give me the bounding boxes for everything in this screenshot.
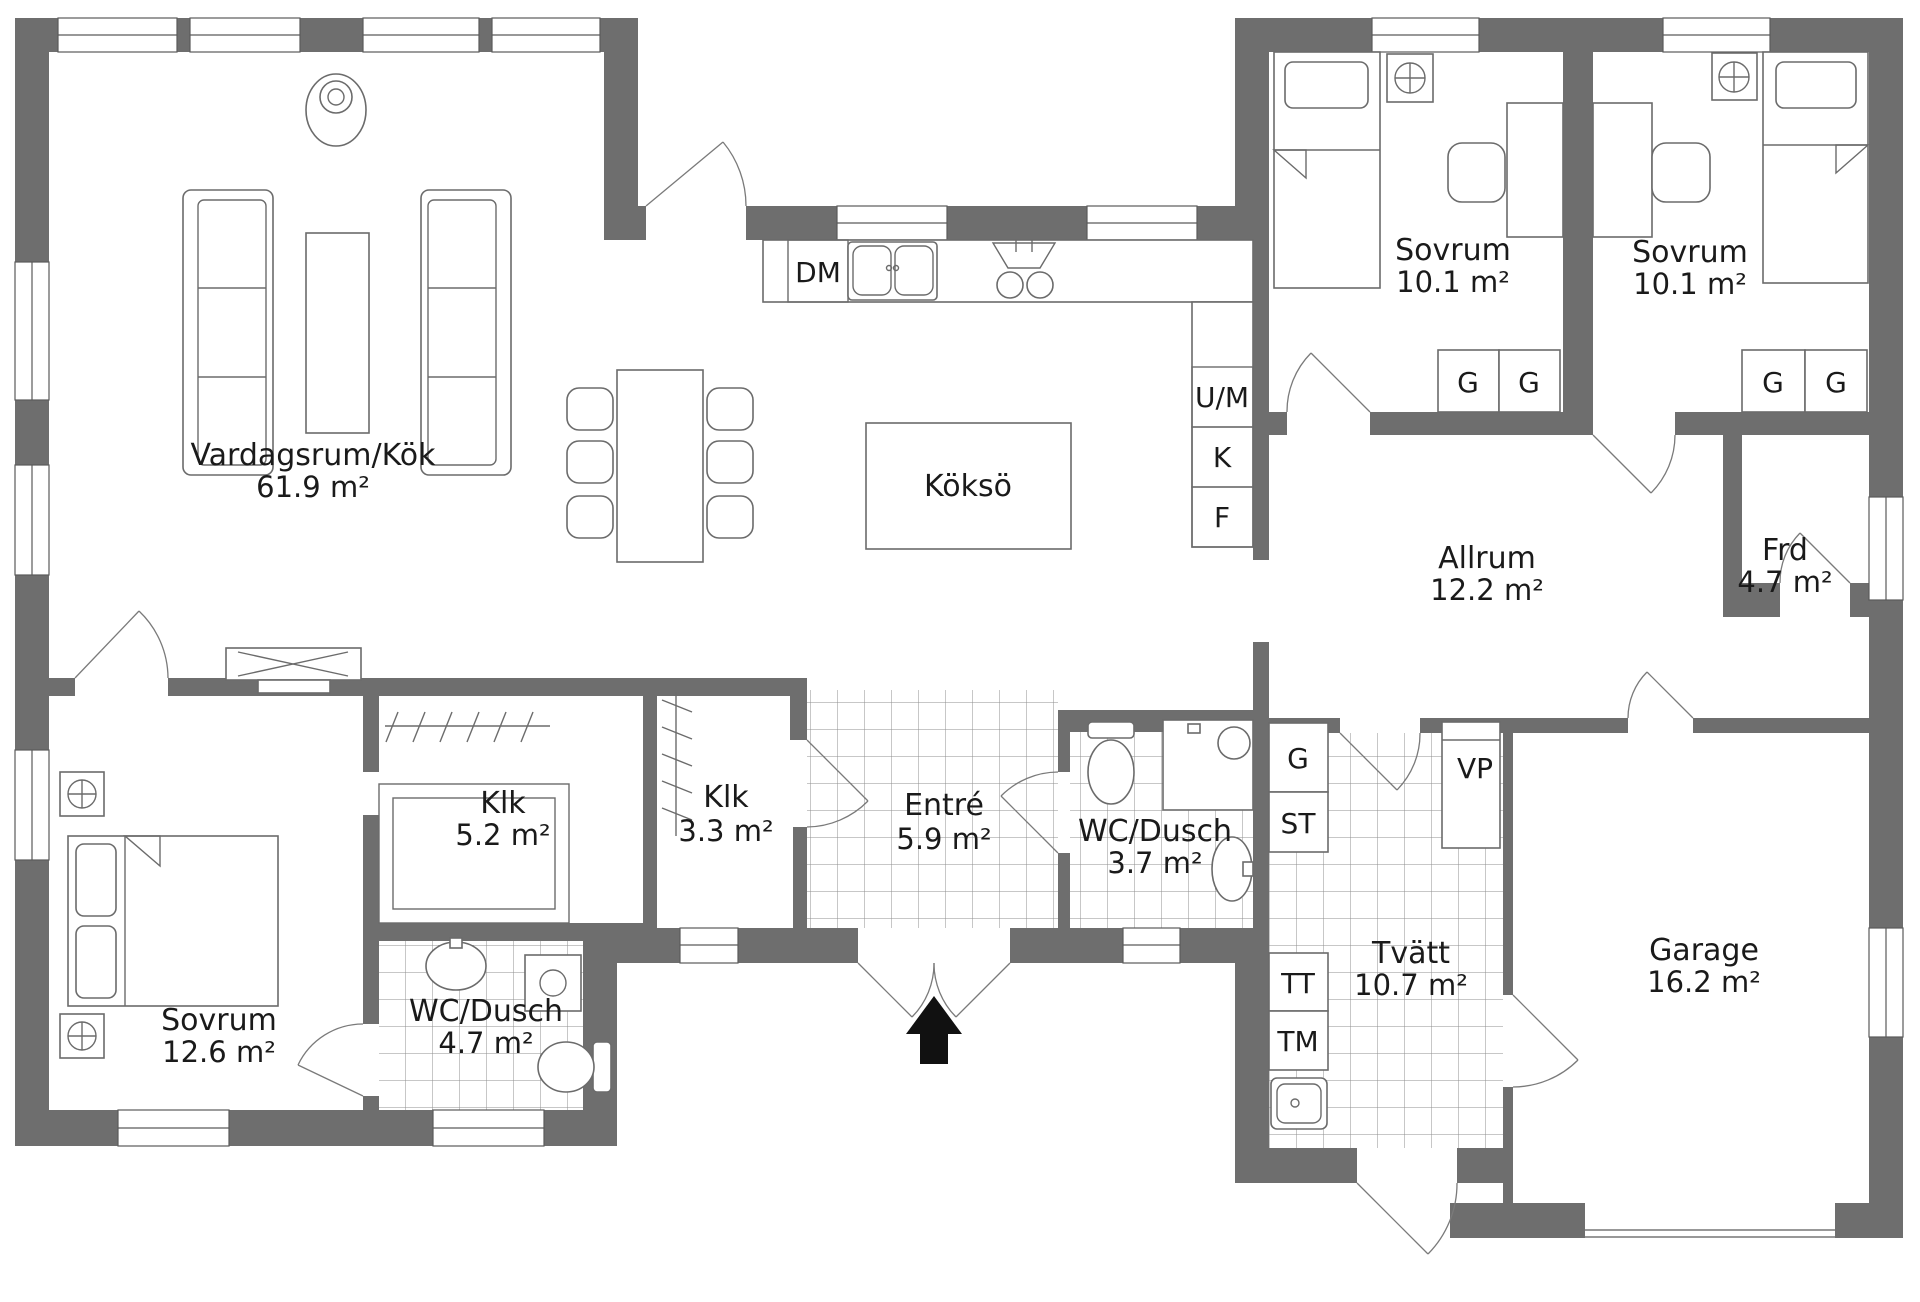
- door-garage: [1628, 672, 1693, 733]
- label-um: U/M: [1195, 381, 1249, 414]
- opening-klk-stor: [363, 772, 379, 815]
- nightstand-lamp: [1387, 54, 1433, 102]
- door-wc-stor: [298, 1024, 379, 1096]
- label-tvattmaskin: TM: [1276, 1025, 1318, 1058]
- nightstand-lamp: [60, 772, 104, 816]
- label-torktumlare: TT: [1280, 967, 1316, 1000]
- door-tvatt-garage: [1503, 995, 1578, 1087]
- room-area-klk-liten: 3.3 m²: [678, 814, 773, 848]
- room-label-garage: Garage: [1649, 933, 1759, 968]
- room-area-sovrum1: 10.1 m²: [1396, 265, 1510, 299]
- room-area-garage: 16.2 m²: [1647, 965, 1761, 999]
- window: [363, 18, 479, 52]
- room-area-tvatt: 10.7 m²: [1354, 968, 1468, 1002]
- room-area-klk-stor: 5.2 m²: [455, 818, 550, 852]
- label-kyl: K: [1213, 441, 1232, 474]
- room-label-entre: Entré: [904, 788, 984, 823]
- room-area-entre: 5.9 m²: [896, 822, 991, 856]
- door-kitchen-exterior: [646, 142, 746, 240]
- room-area-frd: 4.7 m²: [1737, 565, 1832, 599]
- label-garderob: G: [1825, 366, 1847, 399]
- window: [1663, 18, 1770, 52]
- label-garderob: G: [1518, 366, 1540, 399]
- room-area-allrum: 12.2 m²: [1430, 573, 1544, 607]
- window: [58, 18, 177, 52]
- room-area-sovrum2: 10.1 m²: [1633, 267, 1747, 301]
- room-label-klk-stor: Klk: [480, 786, 526, 821]
- toilet: [1088, 722, 1134, 804]
- nightstand-lamp: [60, 1014, 104, 1058]
- label-garderob: G: [1287, 742, 1309, 775]
- room-label-sovrum3: Sovrum: [161, 1003, 277, 1038]
- room-label-tvatt: Tvätt: [1371, 936, 1450, 971]
- room-label-sovrum2: Sovrum: [1632, 235, 1748, 270]
- chair: [1652, 143, 1710, 202]
- heat-pump: [1442, 722, 1500, 848]
- fireplace: [306, 74, 366, 146]
- door-sovrum1: [1287, 353, 1370, 435]
- window: [1869, 497, 1903, 600]
- window: [1123, 928, 1180, 963]
- door-sovrum2: [1593, 412, 1675, 493]
- window: [680, 928, 738, 963]
- toilet: [538, 1042, 611, 1092]
- floor-plan-page: Vardagsrum/Kök 61.9 m² Sovrum 10.1 m² So…: [0, 0, 1920, 1302]
- floor-plan: Vardagsrum/Kök 61.9 m² Sovrum 10.1 m² So…: [0, 0, 1920, 1302]
- shower: [1163, 720, 1253, 810]
- label-kokso: Köksö: [924, 469, 1012, 504]
- room-label-wc-stor: WC/Dusch: [409, 994, 563, 1029]
- window: [15, 465, 49, 575]
- label-stad: ST: [1281, 807, 1317, 840]
- room-area-wc-stor: 4.7 m²: [438, 1026, 533, 1060]
- room-area-sovrum3: 12.6 m²: [162, 1035, 276, 1069]
- nightstand-lamp: [1712, 53, 1757, 100]
- room-label-sovrum1: Sovrum: [1395, 233, 1511, 268]
- label-dm: DM: [795, 256, 841, 289]
- door-sovrum3: [75, 611, 168, 696]
- room-label-allrum: Allrum: [1438, 541, 1536, 576]
- window: [15, 750, 49, 860]
- dining-table: [567, 370, 753, 562]
- label-garderob: G: [1457, 366, 1479, 399]
- kitchen-sink: [848, 242, 937, 300]
- window: [1869, 928, 1903, 1037]
- door-tvatt-exterior: [1357, 1148, 1457, 1254]
- entrance-arrow: [906, 996, 962, 1064]
- coffee-table: [306, 233, 369, 433]
- opening-allrum: [1253, 560, 1269, 642]
- window: [837, 206, 947, 240]
- desk: [1593, 103, 1652, 237]
- laundry-sink: [1271, 1078, 1327, 1129]
- window: [118, 1110, 229, 1146]
- window: [1372, 18, 1479, 52]
- window: [433, 1110, 544, 1146]
- room-area-wc-liten: 3.7 m²: [1107, 846, 1202, 880]
- chair: [1448, 143, 1505, 202]
- room-label-wc-liten: WC/Dusch: [1078, 814, 1232, 849]
- room-area-vardagsrum: 61.9 m²: [256, 470, 370, 504]
- window: [15, 262, 49, 400]
- window: [190, 18, 300, 52]
- room-label-vardagsrum: Vardagsrum/Kök: [190, 438, 436, 473]
- sofa: [421, 190, 511, 475]
- window: [1087, 206, 1197, 240]
- bed-single: [1763, 52, 1868, 283]
- room-label-klk-liten: Klk: [703, 780, 749, 815]
- desk: [1507, 103, 1563, 237]
- bed-single: [1274, 52, 1380, 288]
- room-label-frd: Frd: [1762, 533, 1808, 568]
- label-frys: F: [1214, 501, 1230, 534]
- garage-door: [1585, 1203, 1835, 1238]
- label-varmepump: VP: [1457, 752, 1493, 785]
- bed-double: [68, 836, 278, 1006]
- window: [492, 18, 600, 52]
- label-garderob: G: [1762, 366, 1784, 399]
- sofa: [183, 190, 273, 475]
